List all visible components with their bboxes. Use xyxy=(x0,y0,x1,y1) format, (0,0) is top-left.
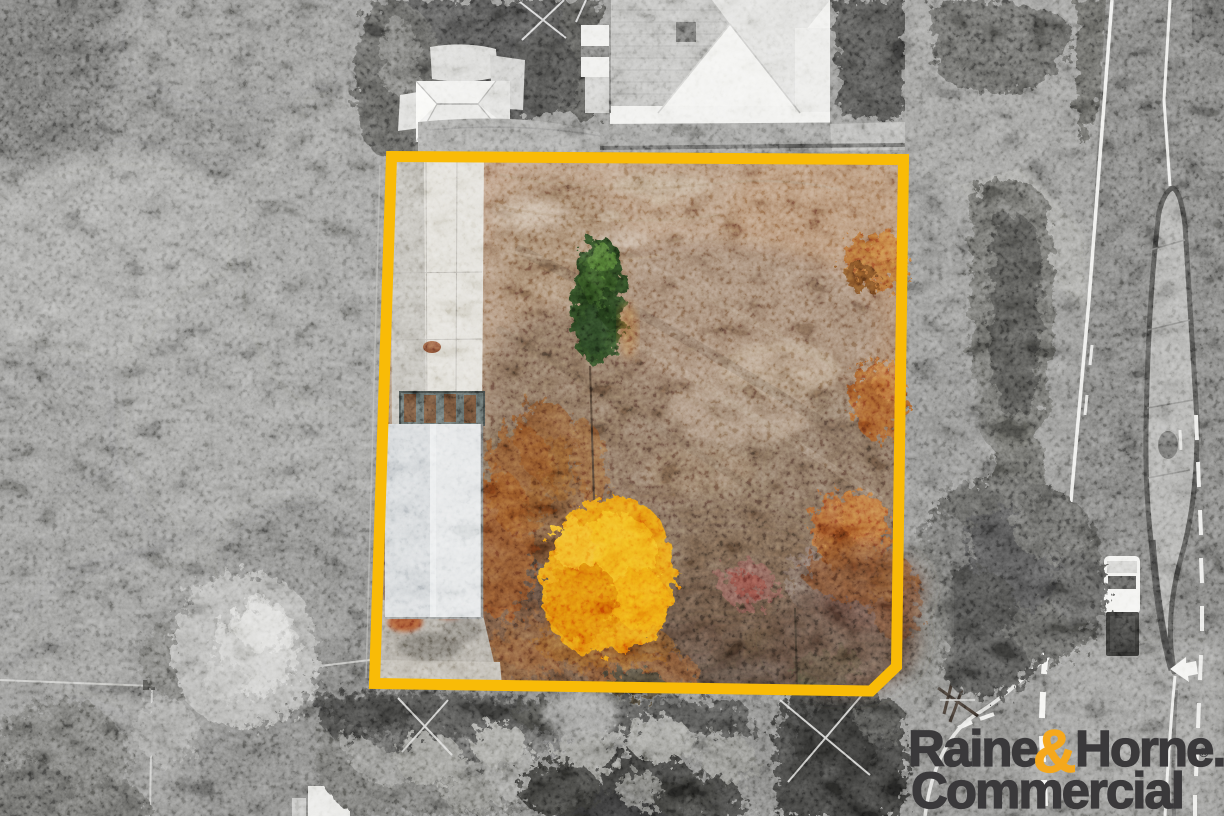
svg-text:®: ® xyxy=(1199,745,1209,760)
svg-text:Commercial: Commercial xyxy=(911,762,1183,816)
